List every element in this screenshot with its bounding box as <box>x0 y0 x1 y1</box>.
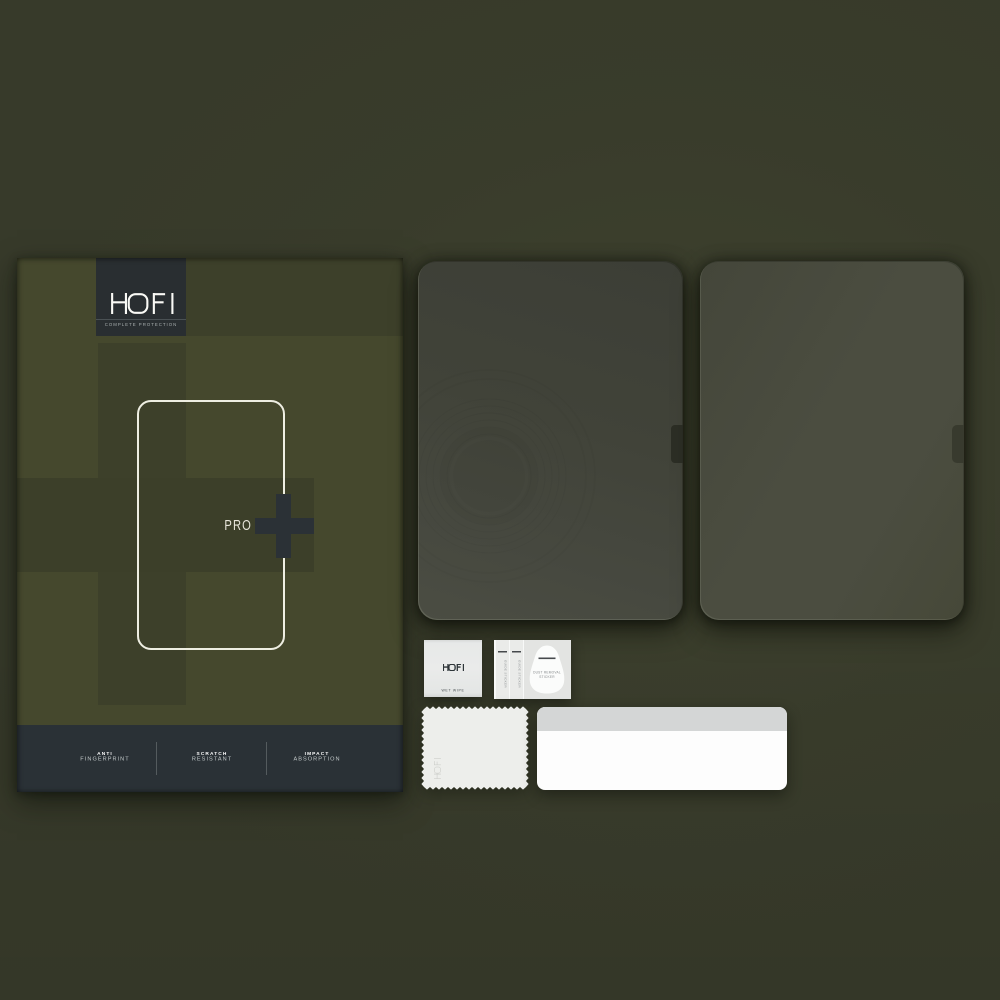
svg-text:GUIDE STICKER: GUIDE STICKER <box>504 660 508 688</box>
svg-text:STICKER: STICKER <box>539 675 555 679</box>
svg-text:GUIDE STICKER: GUIDE STICKER <box>518 660 522 688</box>
svg-text:DUST REMOVAL: DUST REMOVAL <box>533 671 561 675</box>
